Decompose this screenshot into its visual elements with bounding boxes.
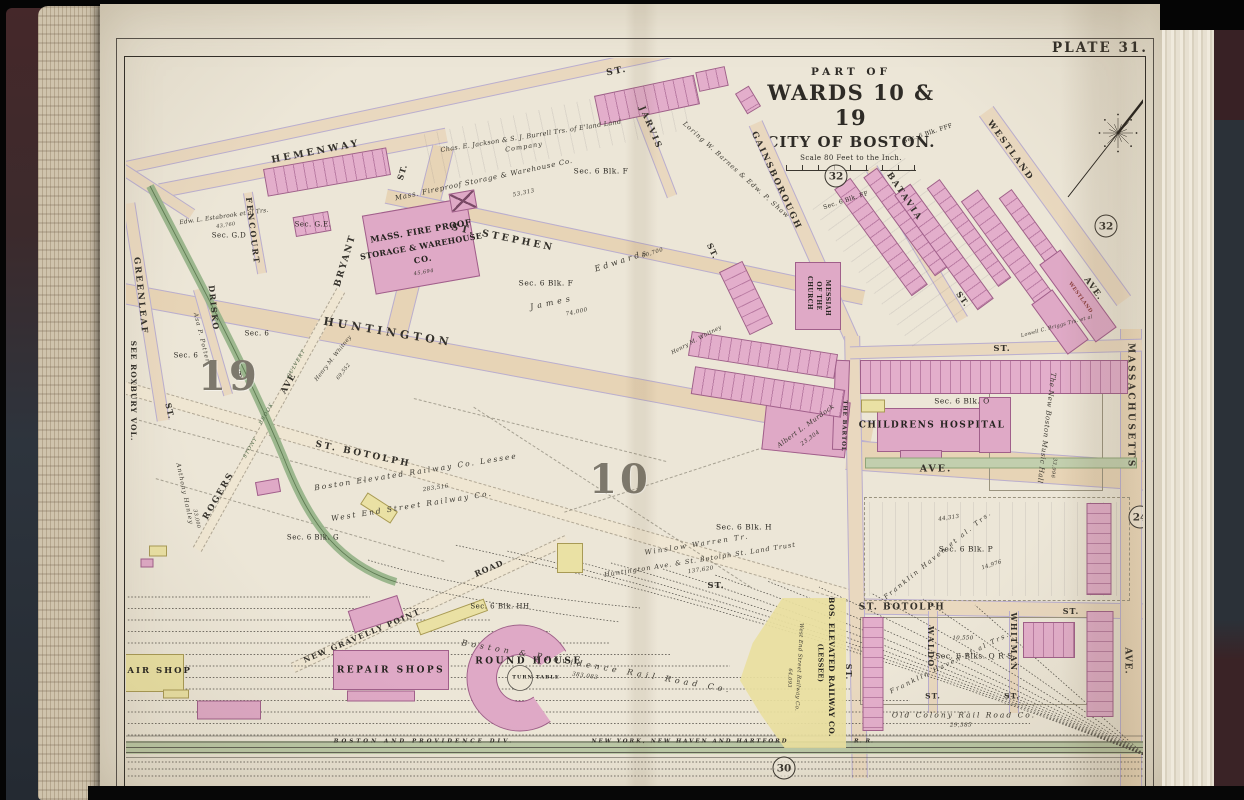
- label-sections-ge: Sec. G.E.: [295, 222, 332, 229]
- label-sections-h: Sec. 6 Blk. H: [716, 523, 772, 531]
- huntington-ave-median: [865, 458, 1137, 469]
- building-wood: [149, 546, 167, 557]
- label-streets-st_botolph_e_st: ST.: [1063, 607, 1079, 615]
- label-streets-massachusetts_ave: AVE.: [1123, 647, 1132, 674]
- rowhouses: [1087, 503, 1112, 595]
- compass-rose-icon: [1068, 96, 1143, 197]
- label-streets-st_g_low: ST.: [845, 664, 853, 680]
- label-railroads-band1: BOSTON AND PROVIDENCE DIV.: [334, 739, 515, 745]
- label-places-bos_elev_2: (LESSEE): [817, 644, 824, 683]
- label-sections-gd: Sec. G.D: [212, 233, 247, 240]
- building-wood: [557, 543, 583, 573]
- label-streets-waldo: WALDO: [927, 626, 935, 668]
- label-margin_note: SEE ROXBURY VOL.: [129, 341, 137, 442]
- rowhouses: [860, 360, 1128, 394]
- label-streets-whitman_st: ST.: [1004, 692, 1020, 700]
- label-sections-qrs: Sec. 6 Blks. Q R S: [935, 652, 1012, 660]
- label-places-bartol: THE BARTOL: [839, 400, 846, 452]
- adjacent-plate-ref: 32: [1095, 215, 1118, 238]
- label-wards-w19: 19: [198, 357, 260, 397]
- label-places-repair_shops: REPAIR SHOPS: [337, 667, 445, 676]
- label-sections-g: Sec. 6 Blk. G: [287, 535, 339, 542]
- rowhouses: [1087, 611, 1114, 717]
- label-sections-hh: Sec. 6 Blk. HH: [470, 604, 529, 611]
- building: [141, 559, 154, 568]
- label-sections-o: Sec. 6 Blk. O: [934, 397, 990, 405]
- building-wood: [861, 400, 885, 413]
- label-owners-old_colony_area: 29,385: [950, 723, 972, 729]
- label-sections-p: Sec. 6 Blk. P: [939, 545, 993, 553]
- label-streets-whitman: WHITMAN: [1010, 612, 1018, 671]
- book-page-edges-left: [38, 6, 104, 800]
- label-places-church_l3: MESSIAH: [824, 280, 830, 316]
- photographed-atlas-page: PLATE 31. PART OF WARDS 10 & 19 CITY OF …: [0, 0, 1244, 800]
- label-streets-waldo_st: ST.: [925, 692, 941, 700]
- label-streets-st_botolph_mid_st: ST.: [707, 582, 724, 591]
- adjacent-plate-ref: 32: [825, 165, 848, 188]
- label-streets-st_botolph_e: ST. BOTOLPH: [859, 604, 946, 613]
- label-owners-haven_q_area: 10,550: [952, 636, 973, 642]
- label-railroads-band2b: R. R.: [854, 739, 874, 745]
- label-owners-old_colony: Old Colony Rail Road Co.: [892, 711, 1036, 719]
- book-cover-right: [1214, 0, 1244, 800]
- label-streets-massachusetts: MASSACHUSETTS: [1126, 343, 1135, 469]
- building: [347, 691, 415, 702]
- adjacent-plate-ref: 30: [773, 757, 796, 780]
- label-streets-st_350: ST.: [993, 345, 1010, 354]
- label-places-bos_elev_1: BOS. ELEVATED RAILWAY CO.: [827, 597, 835, 737]
- label-sections-f1: Sec. 6 Blk. F: [574, 167, 629, 175]
- photo-backdrop-bottom: [88, 786, 1244, 800]
- map-canvas: PART OF WARDS 10 & 19 CITY OF BOSTON. Sc…: [126, 58, 1143, 800]
- label-places-church_l2: OF THE: [815, 281, 821, 310]
- label-places-childrens_hospital: CHILDRENS HOSPITAL: [859, 422, 1006, 431]
- label-streets-huntington_ave: AVE.: [920, 464, 953, 474]
- label-places-repair_shop: REPAIR SHOP: [126, 667, 192, 676]
- photo-backdrop-top: [0, 0, 1244, 4]
- label-places-church_l1: CHURCH: [806, 276, 812, 310]
- atlas-page: PLATE 31. PART OF WARDS 10 & 19 CITY OF …: [100, 4, 1162, 800]
- rowhouses-whitman: [1023, 622, 1075, 658]
- label-places-turn_table: TURN TABLE: [512, 676, 559, 681]
- label-places-music_hall_area: 33,996: [1049, 458, 1056, 479]
- label-sections-s6b: Sec. 6: [245, 331, 270, 338]
- building: [163, 690, 189, 699]
- plate-number: PLATE 31.: [1040, 40, 1160, 56]
- photo-backdrop-top-right: [1160, 0, 1244, 30]
- rowhouses-gainsborough: [863, 617, 884, 731]
- label-sections-f2: Sec. 6 Blk. F: [519, 279, 574, 287]
- label-sections-s6a: Sec. 6: [174, 353, 199, 360]
- label-owners-west_end_v_area: 64,093: [786, 668, 792, 688]
- book-page-edges-right: [1162, 28, 1214, 800]
- label-wards-w10: 10: [589, 460, 651, 500]
- label-railroads-band2: NEW YORK, NEW HAVEN AND HARTFORD: [591, 739, 788, 745]
- building: [197, 701, 261, 720]
